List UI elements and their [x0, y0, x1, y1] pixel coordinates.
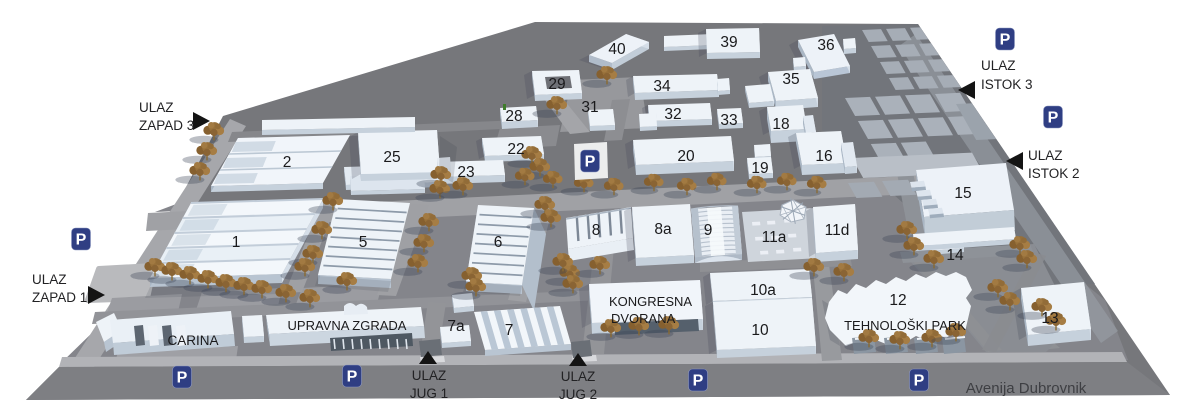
svg-text:P: P [585, 154, 596, 171]
svg-text:9: 9 [704, 222, 713, 239]
svg-text:28: 28 [505, 108, 522, 125]
svg-text:32: 32 [664, 106, 681, 123]
svg-text:KONGRESNA: KONGRESNA [609, 294, 692, 309]
svg-text:5: 5 [359, 234, 368, 251]
svg-text:10a: 10a [750, 282, 776, 299]
svg-text:12: 12 [889, 292, 906, 309]
svg-text:40: 40 [608, 41, 626, 58]
svg-text:ZAPAD 1: ZAPAD 1 [32, 290, 87, 305]
svg-text:11d: 11d [825, 222, 850, 239]
svg-text:ULAZ: ULAZ [1028, 148, 1063, 163]
svg-text:7a: 7a [447, 318, 465, 335]
svg-text:2: 2 [283, 154, 292, 171]
svg-text:DVORANA: DVORANA [611, 311, 676, 326]
svg-text:ZAPAD 3: ZAPAD 3 [139, 118, 194, 133]
svg-text:33: 33 [720, 112, 737, 129]
svg-text:11a: 11a [762, 229, 787, 246]
svg-text:P: P [1000, 32, 1011, 49]
svg-text:35: 35 [782, 71, 799, 88]
svg-text:14: 14 [946, 247, 964, 264]
svg-text:ISTOK 3: ISTOK 3 [981, 77, 1033, 92]
svg-text:36: 36 [817, 37, 834, 54]
svg-text:P: P [1048, 110, 1059, 127]
svg-text:Avenija Dubrovnik: Avenija Dubrovnik [966, 380, 1087, 397]
svg-text:P: P [177, 370, 188, 387]
svg-text:31: 31 [581, 99, 598, 116]
svg-text:ULAZ: ULAZ [561, 369, 596, 384]
svg-text:10: 10 [751, 322, 769, 339]
svg-text:1: 1 [232, 234, 241, 251]
svg-text:39: 39 [720, 34, 737, 51]
svg-text:P: P [76, 232, 87, 249]
svg-text:CARINA: CARINA [167, 333, 218, 348]
svg-text:ULAZ: ULAZ [981, 58, 1016, 73]
svg-text:6: 6 [494, 234, 503, 251]
svg-text:P: P [347, 369, 358, 386]
svg-text:JUG 2: JUG 2 [559, 387, 597, 402]
svg-text:TEHNOLOŠKI PARK: TEHNOLOŠKI PARK [844, 318, 966, 333]
svg-text:18: 18 [772, 116, 789, 133]
svg-text:34: 34 [653, 78, 671, 95]
svg-text:29: 29 [548, 76, 565, 93]
svg-text:13: 13 [1041, 310, 1058, 327]
svg-text:P: P [693, 373, 704, 390]
svg-text:15: 15 [954, 185, 971, 202]
svg-text:20: 20 [677, 148, 695, 165]
svg-text:8a: 8a [654, 221, 672, 238]
svg-text:P: P [914, 373, 925, 390]
svg-text:ISTOK 2: ISTOK 2 [1028, 166, 1080, 181]
svg-text:ULAZ: ULAZ [32, 272, 67, 287]
svg-text:25: 25 [383, 149, 400, 166]
svg-text:7: 7 [505, 322, 514, 339]
svg-text:16: 16 [815, 148, 832, 165]
svg-text:19: 19 [751, 160, 768, 177]
svg-text:23: 23 [457, 164, 474, 181]
svg-text:8: 8 [592, 222, 601, 239]
svg-text:22: 22 [507, 141, 524, 158]
svg-text:ULAZ: ULAZ [139, 100, 174, 115]
svg-text:ULAZ: ULAZ [412, 368, 447, 383]
svg-text:UPRAVNA ZGRADA: UPRAVNA ZGRADA [288, 318, 407, 333]
svg-text:JUG 1: JUG 1 [410, 386, 448, 401]
